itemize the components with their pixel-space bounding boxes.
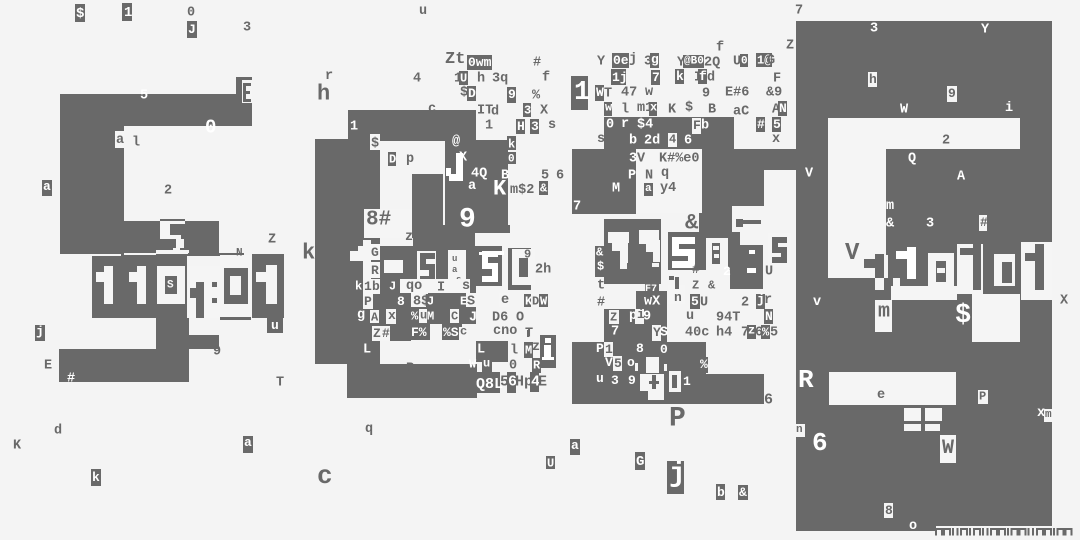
svg-text:#: # (382, 326, 390, 341)
svg-text:cno: cno (493, 324, 517, 339)
svg-text:R: R (533, 358, 541, 372)
svg-text:2h: 2h (535, 262, 551, 277)
svg-text:G: G (767, 54, 775, 69)
svg-text:Q8L: Q8L (476, 376, 503, 393)
svg-text:94T: 94T (716, 310, 740, 325)
svg-text:k: k (302, 240, 315, 265)
svg-text:H: H (517, 119, 525, 134)
svg-text:R: R (406, 361, 415, 376)
svg-text:0: 0 (606, 118, 614, 133)
svg-text:k: k (676, 69, 684, 84)
svg-text:1: 1 (364, 279, 372, 294)
svg-text:9: 9 (213, 344, 221, 359)
svg-text:1: 1 (574, 78, 590, 108)
svg-text:2d: 2d (644, 133, 660, 148)
svg-text:3: 3 (611, 373, 619, 388)
svg-text:2: 2 (942, 133, 950, 148)
svg-text:k: k (92, 470, 100, 485)
svg-text:V: V (845, 240, 860, 267)
svg-text:K: K (493, 176, 507, 201)
svg-text:x: x (650, 100, 657, 114)
svg-text:9: 9 (643, 309, 651, 324)
svg-text:0: 0 (187, 5, 195, 20)
svg-text:m: m (878, 301, 890, 324)
svg-text:y4: y4 (660, 181, 676, 196)
svg-text:1: 1 (124, 5, 132, 21)
svg-text:T: T (276, 375, 284, 390)
svg-text:I: I (437, 280, 445, 295)
svg-text:e: e (877, 388, 885, 403)
svg-text:&: & (886, 216, 895, 231)
svg-text:D: D (389, 152, 396, 166)
svg-text:&: & (596, 245, 604, 259)
svg-text:2: 2 (164, 183, 172, 198)
svg-text:3: 3 (243, 20, 251, 35)
svg-text:A: A (957, 169, 966, 184)
svg-text:D: D (468, 86, 476, 101)
svg-text:a: a (452, 265, 458, 275)
svg-text:8: 8 (397, 294, 405, 309)
svg-text:#: # (67, 371, 75, 386)
svg-text:&: & (739, 485, 747, 500)
svg-text:@: @ (452, 134, 460, 149)
svg-text:5: 5 (691, 294, 699, 309)
svg-text:a: a (116, 133, 124, 148)
svg-text:x: x (772, 132, 780, 147)
svg-text:s: s (548, 118, 556, 133)
svg-text:s: s (597, 132, 605, 147)
svg-text:&9: &9 (766, 86, 782, 101)
svg-text:Y: Y (981, 23, 990, 38)
svg-text:5: 5 (541, 168, 549, 183)
svg-text:u: u (686, 309, 694, 324)
svg-text:$: $ (371, 136, 379, 151)
svg-text:qo: qo (406, 279, 422, 294)
svg-text:G: G (636, 454, 644, 470)
svg-text:1: 1 (350, 119, 358, 134)
svg-text:U: U (700, 295, 708, 310)
svg-text:6: 6 (684, 133, 692, 148)
svg-text:W: W (596, 85, 604, 100)
svg-text:N: N (765, 309, 773, 324)
svg-text:3q: 3q (492, 72, 508, 87)
svg-text:R: R (798, 365, 814, 395)
svg-text:wX: wX (644, 294, 661, 309)
svg-text:P: P (364, 294, 372, 309)
svg-text:%S: %S (443, 325, 459, 340)
svg-text:o: o (627, 355, 635, 370)
svg-text:V: V (805, 166, 814, 181)
svg-text:aC: aC (733, 105, 749, 120)
svg-text:h: h (477, 72, 485, 87)
svg-text:k: k (355, 279, 362, 293)
svg-text:X: X (1060, 293, 1069, 308)
svg-text:u: u (483, 356, 490, 370)
svg-text:Z: Z (373, 326, 381, 341)
svg-text:b: b (717, 485, 725, 500)
svg-text:F%: F% (411, 325, 427, 340)
svg-text:S: S (467, 294, 475, 309)
svg-text:2: 2 (741, 295, 749, 310)
svg-text:O: O (516, 310, 524, 325)
svg-text:j: j (629, 52, 637, 67)
svg-text:o: o (909, 519, 917, 534)
svg-text:d: d (54, 423, 62, 438)
svg-text:d: d (707, 71, 715, 86)
svg-text:p: p (406, 152, 414, 167)
svg-text:h: h (317, 81, 330, 106)
svg-text:6: 6 (764, 392, 773, 409)
svg-text:k: k (508, 137, 515, 151)
svg-text:Y: Y (597, 55, 606, 70)
svg-text:Z: Z (786, 39, 794, 54)
svg-text:t: t (597, 278, 605, 293)
svg-text:u: u (271, 318, 279, 333)
svg-text:0e: 0e (613, 53, 629, 68)
svg-text:i: i (1005, 101, 1013, 116)
svg-text:%: % (762, 325, 770, 339)
svg-text:w: w (645, 85, 654, 100)
svg-text:R: R (371, 263, 379, 278)
svg-text:s: s (462, 279, 470, 294)
svg-text:J: J (188, 22, 196, 37)
svg-text:3: 3 (870, 21, 878, 36)
svg-text:#: # (692, 262, 700, 277)
svg-text:&: & (685, 210, 699, 235)
svg-text:8: 8 (636, 341, 644, 356)
svg-text:a: a (571, 438, 579, 453)
svg-text:%: % (532, 89, 541, 104)
svg-text:J: J (427, 294, 434, 308)
svg-text:0: 0 (205, 116, 216, 138)
svg-text:A: A (371, 310, 379, 324)
svg-text:K#%e0: K#%e0 (659, 151, 700, 166)
svg-text:8#: 8# (366, 209, 391, 232)
svg-text:#: # (597, 295, 605, 310)
svg-text:m$2: m$2 (510, 183, 534, 198)
svg-text:Z: Z (268, 232, 276, 247)
svg-text:m: m (1045, 409, 1052, 421)
svg-text:u: u (419, 4, 427, 19)
svg-text:W: W (942, 437, 954, 460)
svg-text:q: q (365, 422, 373, 437)
svg-text:h4: h4 (716, 325, 732, 340)
svg-text:$4: $4 (637, 118, 653, 133)
svg-text:W: W (540, 294, 548, 308)
svg-text:V: V (605, 355, 613, 370)
svg-text:3: 3 (531, 119, 539, 134)
svg-text:Z: Z (692, 278, 699, 292)
svg-text:W: W (900, 103, 909, 118)
svg-text:a: a (43, 179, 51, 194)
svg-text:U: U (460, 71, 467, 85)
svg-text:j: j (36, 324, 44, 339)
svg-text:a: a (468, 179, 476, 194)
svg-text:E#6: E#6 (725, 86, 749, 101)
svg-text:N: N (645, 168, 653, 183)
svg-text:5: 5 (140, 89, 148, 104)
svg-text:n: n (796, 424, 803, 436)
svg-text:E: E (44, 358, 52, 373)
svg-text:7: 7 (611, 324, 619, 339)
svg-text:1: 1 (485, 118, 493, 133)
svg-text:8: 8 (885, 503, 893, 518)
svg-text:P: P (669, 404, 686, 435)
svg-text:U: U (547, 456, 554, 470)
svg-text:4: 4 (669, 132, 676, 146)
svg-text:5: 5 (773, 117, 781, 132)
svg-text:b: b (701, 118, 709, 133)
svg-text:0: 0 (741, 56, 748, 68)
svg-text:r: r (621, 117, 629, 132)
svg-text:u: u (596, 371, 604, 386)
svg-text:$: $ (955, 301, 971, 331)
svg-text:47: 47 (621, 86, 637, 101)
svg-text:U: U (733, 55, 741, 70)
svg-text:f: f (699, 69, 707, 84)
svg-text:%: % (700, 357, 708, 372)
svg-text:P: P (596, 341, 604, 356)
svg-text:X: X (540, 104, 549, 119)
svg-text:0: 0 (509, 358, 517, 373)
svg-text:1j: 1j (612, 70, 628, 85)
svg-text:L: L (363, 342, 371, 357)
svg-text:M: M (612, 181, 620, 196)
svg-text:Zt: Zt (445, 50, 465, 69)
svg-text:$: $ (460, 86, 468, 101)
svg-text:$: $ (597, 259, 604, 273)
svg-text:9: 9 (459, 205, 476, 236)
svg-text:c: c (460, 324, 467, 338)
svg-text:5: 5 (614, 356, 622, 371)
svg-text:T: T (604, 87, 612, 102)
svg-text:6: 6 (556, 168, 564, 183)
svg-text:v: v (813, 295, 821, 310)
svg-text:a: a (244, 435, 252, 450)
svg-text:$: $ (685, 101, 693, 116)
svg-text:B: B (708, 103, 716, 118)
svg-text:S: S (660, 325, 668, 340)
svg-text:l: l (132, 135, 140, 150)
svg-text:3: 3 (926, 216, 934, 231)
svg-text:m: m (886, 199, 894, 214)
svg-text:a: a (645, 183, 652, 195)
svg-text:c: c (317, 461, 333, 491)
svg-text:b: b (629, 133, 637, 148)
svg-text:9: 9 (702, 87, 710, 102)
svg-text:f: f (542, 71, 550, 86)
svg-text:x: x (1037, 406, 1045, 421)
svg-text:1: 1 (683, 374, 691, 389)
svg-text:D: D (532, 294, 539, 308)
svg-text:U: U (765, 264, 773, 279)
svg-text:f: f (716, 41, 724, 56)
svg-text:$: $ (76, 6, 84, 22)
svg-text:Q: Q (908, 151, 916, 166)
svg-text:9: 9 (948, 86, 956, 101)
svg-text:N: N (236, 248, 243, 260)
svg-text:n: n (674, 290, 682, 305)
svg-text:K: K (13, 438, 22, 453)
svg-text:9: 9 (628, 373, 636, 388)
svg-text:&: & (708, 278, 716, 292)
svg-text:#: # (757, 117, 765, 132)
svg-text:9: 9 (524, 247, 531, 261)
svg-text:5: 5 (770, 325, 778, 340)
svg-text:C: C (451, 309, 458, 323)
svg-text:0: 0 (660, 342, 668, 357)
svg-text:3: 3 (629, 151, 637, 166)
svg-text:g: g (651, 52, 659, 67)
svg-text:9: 9 (508, 87, 516, 102)
svg-text:z: z (405, 230, 413, 245)
svg-text:J: J (469, 310, 477, 325)
svg-text:D6: D6 (492, 310, 508, 325)
svg-text:z: z (532, 340, 540, 355)
svg-text:b: b (372, 279, 380, 294)
svg-text:r: r (325, 69, 333, 84)
svg-text:d: d (491, 105, 499, 120)
svg-text:l: l (510, 343, 518, 358)
svg-text:F7: F7 (645, 284, 657, 295)
svg-text:g: g (357, 308, 365, 323)
svg-text:P: P (979, 389, 986, 403)
svg-text:M: M (427, 309, 434, 323)
svg-text:j: j (669, 459, 686, 490)
svg-text:2: 2 (723, 264, 731, 279)
svg-text:u: u (452, 254, 457, 264)
svg-text:Z: Z (610, 310, 617, 324)
svg-text:6: 6 (812, 428, 828, 458)
svg-text:0: 0 (508, 154, 515, 166)
svg-text:W: W (469, 357, 477, 371)
svg-text:L: L (477, 342, 485, 357)
svg-text:V: V (637, 151, 646, 166)
svg-text:F: F (693, 118, 701, 133)
svg-text:7: 7 (795, 3, 803, 18)
svg-text:E: E (538, 374, 547, 391)
svg-text:S: S (167, 280, 174, 292)
svg-text:q: q (661, 166, 669, 181)
svg-text:N: N (779, 101, 787, 116)
svg-text:7: 7 (573, 199, 581, 214)
svg-text:G: G (371, 245, 379, 260)
svg-text:0wm: 0wm (468, 55, 492, 70)
svg-text:%: % (411, 309, 419, 323)
svg-text:F: F (773, 72, 781, 87)
svg-text:7: 7 (652, 70, 660, 85)
svg-text:r: r (764, 293, 772, 308)
svg-text:c: c (428, 102, 436, 117)
svg-text:3: 3 (524, 103, 531, 117)
svg-text:J: J (389, 279, 396, 293)
svg-text:x: x (388, 308, 396, 323)
svg-text:h: h (869, 72, 877, 87)
svg-text:T: T (525, 326, 533, 341)
svg-text:&: & (540, 181, 548, 195)
svg-text:40c: 40c (685, 325, 709, 340)
svg-text:#: # (533, 56, 541, 71)
svg-text:4: 4 (413, 72, 421, 87)
svg-text:l: l (621, 103, 629, 118)
svg-text:e: e (501, 293, 509, 308)
svg-text:K: K (668, 103, 677, 118)
svg-text:w: w (605, 100, 613, 114)
svg-text:@B0: @B0 (684, 56, 704, 68)
svg-text:P: P (628, 168, 636, 183)
svg-text:#: # (980, 215, 988, 230)
